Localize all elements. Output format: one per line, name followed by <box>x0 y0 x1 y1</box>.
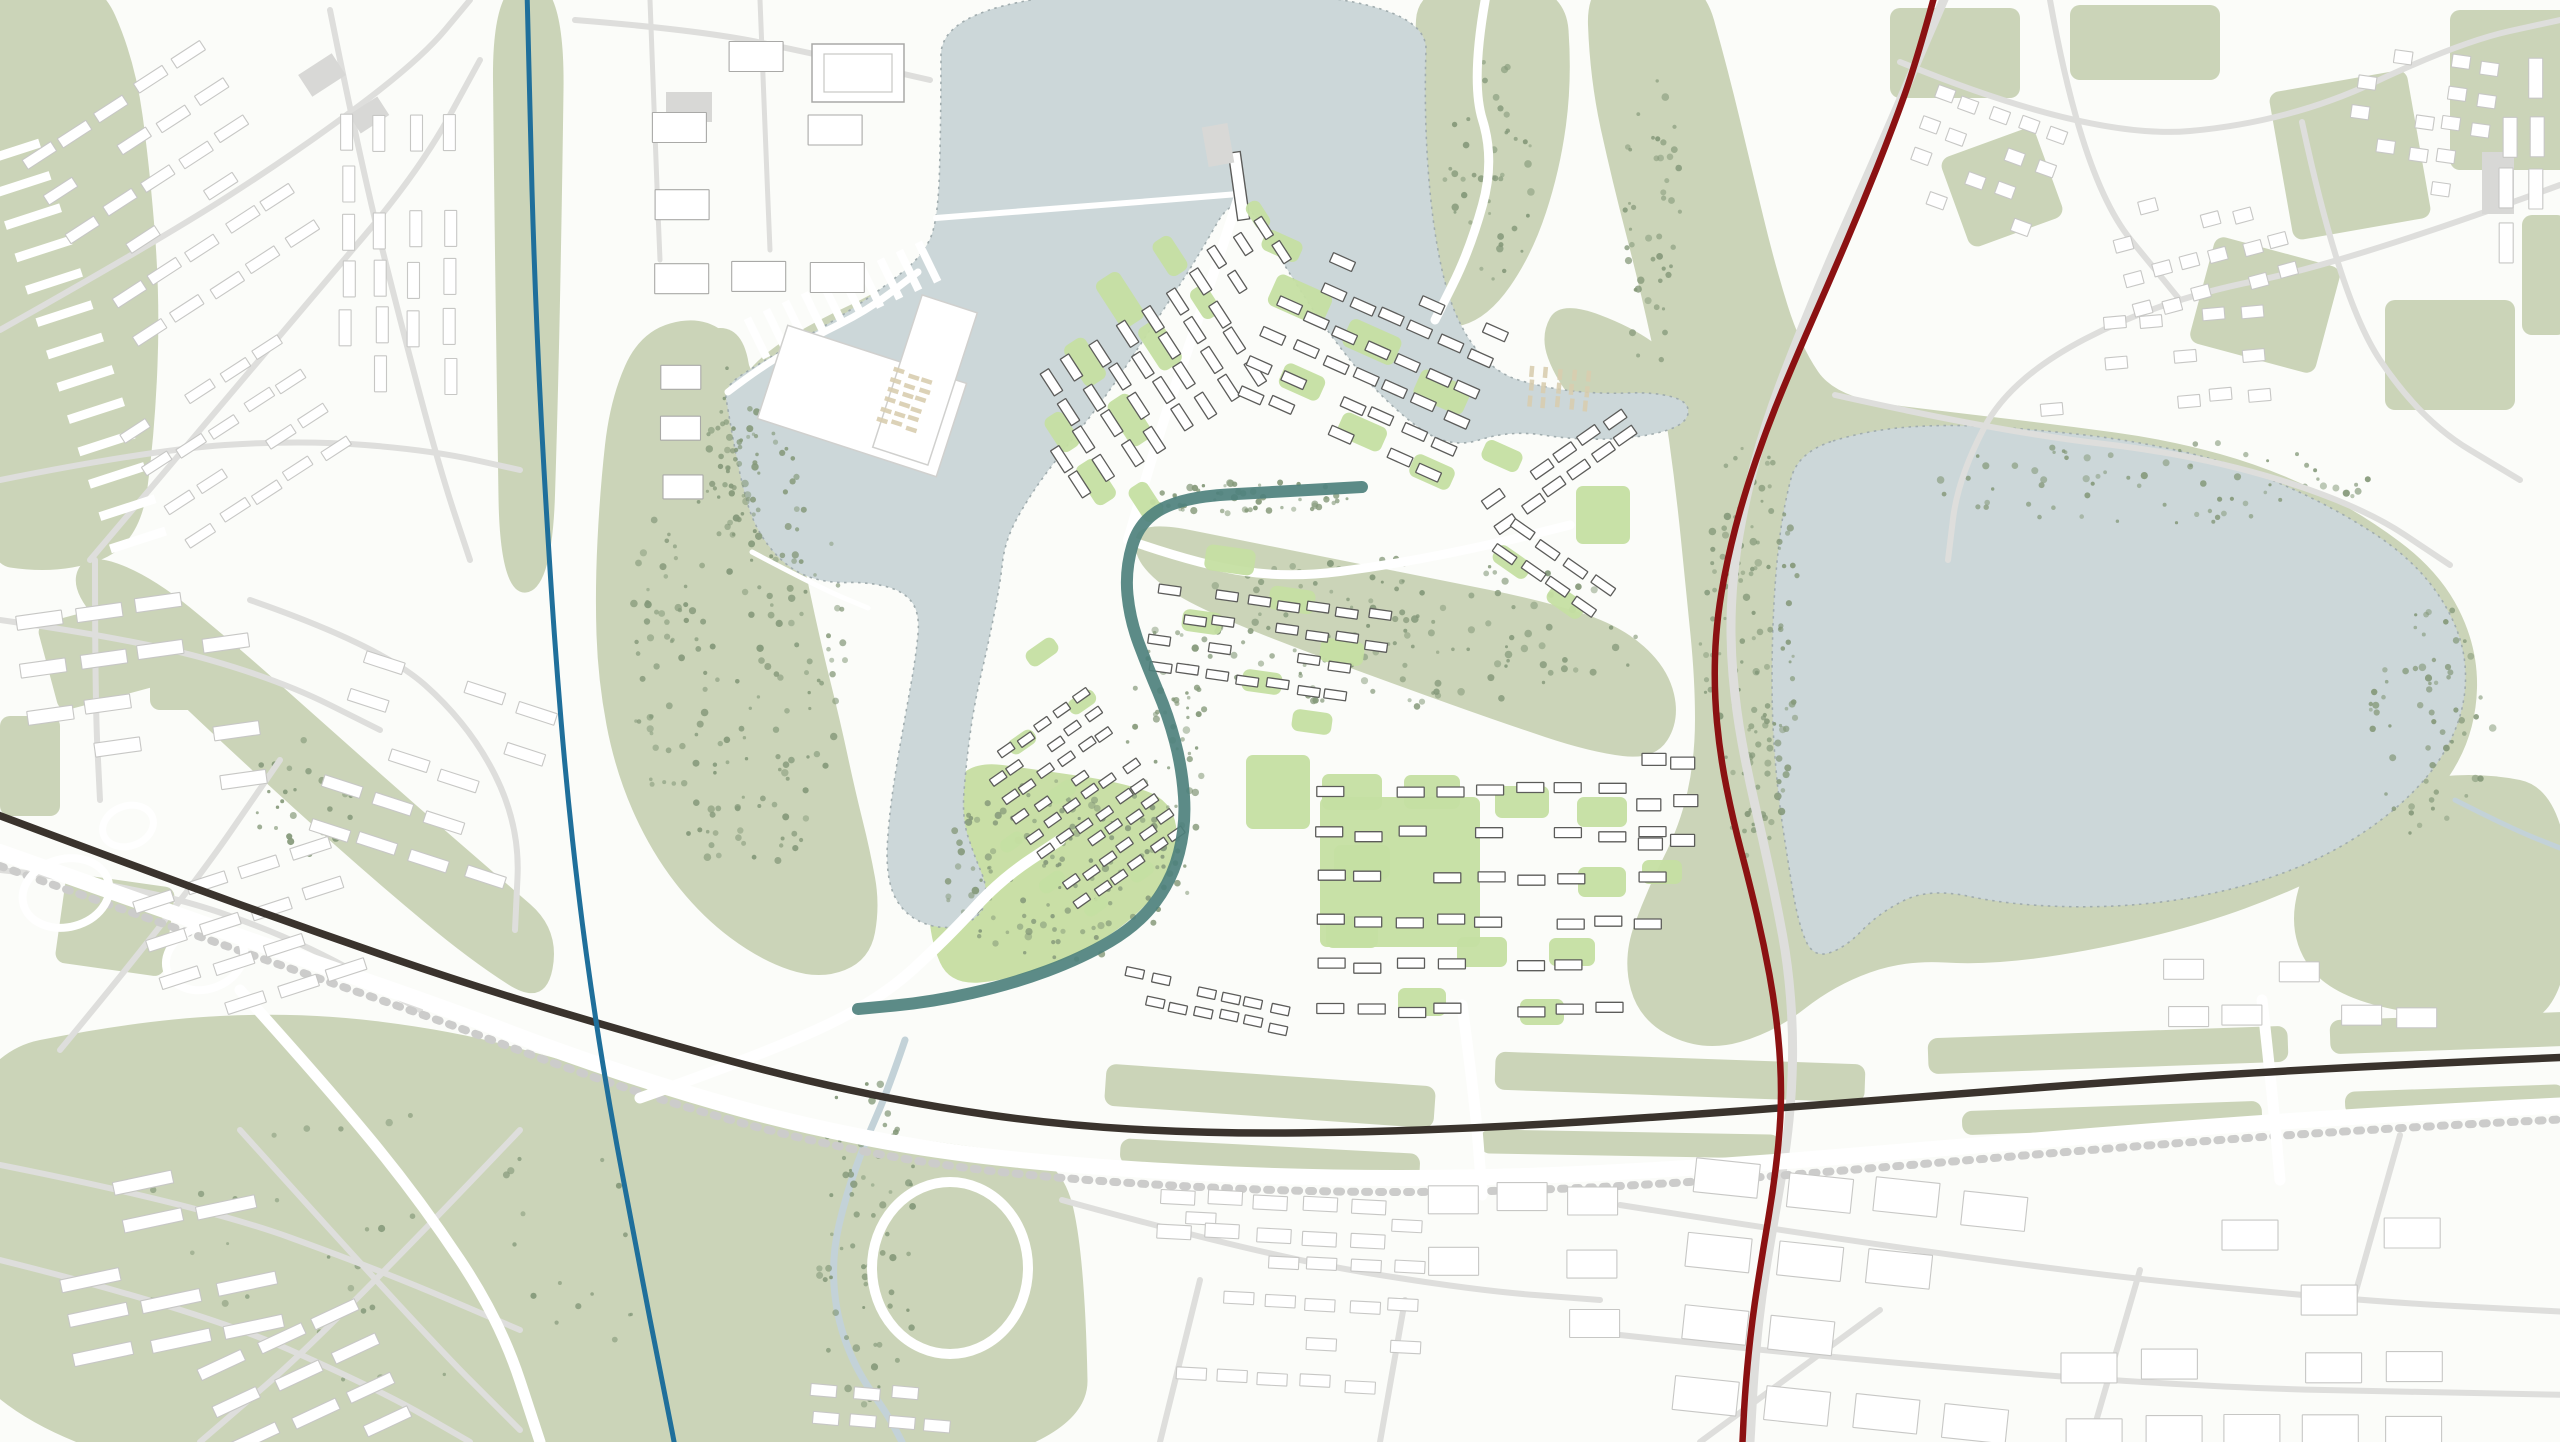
tree-dot <box>1743 594 1750 601</box>
tree-dot <box>2108 452 2114 458</box>
tree-dot <box>1006 931 1010 935</box>
tree-dot <box>1479 267 1483 271</box>
tree-dot <box>753 529 757 533</box>
tree-dot <box>1710 561 1714 565</box>
building <box>2242 349 2265 363</box>
tree-dot <box>850 1181 857 1188</box>
building <box>1557 919 1584 929</box>
tree-dot <box>822 763 828 769</box>
tree-dot <box>664 619 670 625</box>
tree-dot <box>785 523 792 530</box>
building <box>1556 1004 1583 1014</box>
tree-dot <box>1527 188 1535 196</box>
tree-dot <box>880 1250 886 1256</box>
tree-dot <box>647 634 654 641</box>
building <box>1345 1381 1376 1395</box>
tree-dot <box>1942 492 1947 497</box>
tree-dot <box>1530 602 1538 610</box>
building <box>1476 828 1503 838</box>
building <box>1438 914 1465 924</box>
tree-dot <box>1468 220 1472 224</box>
tree-dot <box>1498 695 1505 702</box>
tree-dot <box>1212 582 1219 589</box>
tree-dot <box>747 406 753 412</box>
tree-dot <box>1976 454 1980 458</box>
tree-dot <box>757 585 761 589</box>
building <box>1205 1223 1240 1239</box>
tree-dot <box>718 454 724 460</box>
tree-dot <box>780 553 786 559</box>
building <box>2376 139 2396 154</box>
tree-dot <box>1175 630 1180 635</box>
tree-dot <box>1740 638 1746 644</box>
building <box>810 263 864 293</box>
tree-dot <box>1741 447 1744 450</box>
tree-dot <box>1651 257 1656 262</box>
tree-dot <box>287 838 294 845</box>
tree-dot <box>2419 664 2427 672</box>
tree-dot <box>695 646 701 652</box>
tree-dot <box>1754 730 1757 733</box>
tree-dot <box>1125 825 1131 831</box>
tree-dot <box>724 419 730 425</box>
tree-dot <box>816 1265 822 1271</box>
tree-dot <box>1160 490 1165 495</box>
tree-dot <box>693 760 700 767</box>
boat-mark <box>1543 367 1548 378</box>
tree-dot <box>1562 657 1568 663</box>
tree-dot <box>1778 627 1781 630</box>
tree-dot <box>774 671 780 677</box>
tree-dot <box>2440 729 2446 735</box>
tree-dot <box>703 671 707 675</box>
building <box>2141 1349 2197 1379</box>
tree-dot <box>2084 454 2091 461</box>
tree-dot <box>1266 626 1270 630</box>
building <box>1317 914 1344 924</box>
tree-dot <box>665 539 670 544</box>
tree-dot <box>1675 165 1682 172</box>
building <box>729 42 783 72</box>
building <box>1642 753 1666 765</box>
building <box>1351 1199 1386 1215</box>
tree-dot <box>731 426 736 431</box>
tree-dot <box>1433 689 1439 695</box>
tree-dot <box>849 1192 854 1197</box>
tree-dot <box>1539 642 1546 649</box>
tree-dot <box>1710 547 1715 552</box>
tree-dot <box>637 719 642 724</box>
tree-dot <box>1790 563 1796 569</box>
tree-dot <box>1400 676 1406 682</box>
tree-dot <box>1778 547 1781 550</box>
building <box>1570 1310 1620 1338</box>
building <box>1639 872 1666 882</box>
tree-dot <box>1671 245 1676 250</box>
tree-dot <box>1411 645 1415 649</box>
tree-dot <box>958 848 965 855</box>
tree-dot <box>1495 590 1501 596</box>
tree-dot <box>1651 136 1655 140</box>
tree-dot <box>575 1303 581 1309</box>
tree-dot <box>1078 817 1081 820</box>
tree-dot <box>889 1289 895 1295</box>
building <box>2393 50 2413 65</box>
tree-dot <box>755 453 759 457</box>
tree-dot <box>1202 484 1205 487</box>
tree-dot <box>1546 624 1553 631</box>
tree-dot <box>836 583 841 588</box>
tree-dot <box>1313 581 1318 586</box>
tree-dot <box>1201 636 1207 642</box>
building <box>2386 1352 2442 1382</box>
building <box>1961 1191 2028 1232</box>
tree-dot <box>327 1255 331 1259</box>
tree-dot <box>2374 709 2380 715</box>
tree-dot <box>1153 716 1160 723</box>
tree-dot <box>1059 856 1065 862</box>
tree-dot <box>757 804 761 808</box>
map-stage <box>0 0 2560 1442</box>
building <box>339 310 351 346</box>
tree-dot <box>862 1306 865 1309</box>
tree-dot <box>2217 497 2222 502</box>
tree-dot <box>2215 440 2221 446</box>
tree-dot <box>779 843 783 847</box>
tree-dot <box>1173 697 1179 703</box>
building <box>1637 799 1661 811</box>
tree-dot <box>817 679 821 683</box>
tree-dot <box>1509 635 1514 640</box>
tree-dot <box>1419 590 1425 596</box>
tree-dot <box>1628 202 1631 205</box>
tree-dot <box>2230 497 2234 501</box>
tree-dot <box>378 1225 385 1232</box>
tree-dot <box>1631 205 1636 210</box>
tree-dot <box>636 651 641 656</box>
building <box>2279 962 2319 982</box>
tree-dot <box>1738 578 1743 583</box>
tree-dot <box>1454 211 1457 214</box>
tree-dot <box>272 1133 277 1138</box>
tree-dot <box>645 600 649 604</box>
tree-dot <box>2163 503 2167 507</box>
tree-dot <box>725 465 731 471</box>
building <box>443 308 455 344</box>
building <box>1865 1249 1932 1290</box>
tree-dot <box>1783 726 1789 732</box>
tree-dot <box>990 848 996 854</box>
building <box>655 190 709 220</box>
tree-dot <box>2243 501 2249 507</box>
tree-dot <box>1026 793 1030 797</box>
tree-dot <box>1523 139 1528 144</box>
building <box>373 115 385 151</box>
tree-dot <box>1704 691 1707 694</box>
tree-dot <box>2012 462 2019 469</box>
tree-dot <box>1411 615 1419 623</box>
tree-dot <box>2372 702 2379 709</box>
tree-dot <box>825 1265 832 1272</box>
building <box>2357 75 2377 90</box>
tree-dot <box>756 645 763 652</box>
building <box>2384 1218 2440 1248</box>
tree-dot <box>743 736 746 739</box>
building <box>2529 58 2543 98</box>
tree-dot <box>739 726 745 732</box>
tree-dot <box>1252 619 1259 626</box>
tree-dot <box>1526 214 1530 218</box>
tree-dot <box>1730 770 1735 775</box>
tree-dot <box>773 727 779 733</box>
tree-dot <box>968 892 974 898</box>
tree-dot <box>871 1363 878 1370</box>
building <box>1567 1250 1617 1278</box>
tree-dot <box>1080 929 1085 934</box>
tree-dot <box>1225 510 1231 516</box>
tree-dot <box>1763 713 1767 717</box>
tree-dot <box>844 1335 849 1340</box>
tree-dot <box>1755 741 1761 747</box>
tree-dot <box>1625 144 1631 150</box>
tree-dot <box>795 527 799 531</box>
tree-dot <box>1436 651 1439 654</box>
tree-dot <box>2141 472 2148 479</box>
tree-dot <box>1767 456 1771 460</box>
building <box>1358 1004 1385 1014</box>
tree-dot <box>1491 277 1494 280</box>
tree-dot <box>829 1276 833 1280</box>
tree-dot <box>1283 612 1288 617</box>
tree-dot <box>697 500 701 504</box>
tree-dot <box>764 663 771 670</box>
tree-dot <box>992 940 998 946</box>
tree-dot <box>887 1303 892 1308</box>
building <box>1302 1231 1337 1247</box>
tree-dot <box>2026 502 2031 507</box>
tree-dot <box>1323 496 1329 502</box>
tree-dot <box>305 768 311 774</box>
tree-dot <box>1542 681 1545 684</box>
tree-dot <box>1723 617 1726 620</box>
tree-dot <box>1133 686 1138 691</box>
tree-dot <box>1724 464 1729 469</box>
tree-dot <box>678 654 685 661</box>
tree-dot <box>2472 775 2479 782</box>
tree-dot <box>724 737 731 744</box>
tree-dot <box>2382 667 2387 672</box>
tree-dot <box>1645 235 1652 242</box>
tree-dot <box>2443 745 2450 752</box>
tree-dot <box>741 512 745 516</box>
tree-dot <box>1032 819 1037 824</box>
tree-dot <box>889 1254 896 1261</box>
tree-dot <box>773 440 778 445</box>
building <box>2451 54 2471 69</box>
tree-dot <box>1629 228 1632 231</box>
tree-dot <box>736 461 742 467</box>
tree-dot <box>742 589 748 595</box>
tree-dot <box>1712 569 1717 574</box>
tree-dot <box>713 830 719 836</box>
tree-dot <box>829 1193 833 1197</box>
tree-dot <box>1757 629 1764 636</box>
tree-dot <box>752 855 757 860</box>
tree-dot <box>558 1281 562 1285</box>
tree-dot <box>989 869 993 873</box>
tree-dot <box>600 1158 604 1162</box>
tree-dot <box>2445 664 2451 670</box>
building <box>1350 1301 1381 1315</box>
building <box>2441 115 2461 130</box>
tree-dot <box>1435 680 1442 687</box>
building <box>2178 394 2201 408</box>
building <box>1438 959 1465 969</box>
tree-dot <box>2221 511 2227 517</box>
tree-dot <box>715 677 720 682</box>
tree-dot <box>778 768 782 772</box>
tree-dot <box>1161 855 1165 859</box>
tree-dot <box>885 1110 892 1117</box>
tree-dot <box>1109 835 1114 840</box>
tree-dot <box>697 721 704 728</box>
tree-dot <box>2369 708 2373 712</box>
tree-dot <box>1785 531 1790 536</box>
building <box>2306 1353 2362 1383</box>
tree-dot <box>1299 672 1302 675</box>
tree-dot <box>275 1198 279 1202</box>
tree-dot <box>708 805 715 812</box>
building <box>1354 963 1381 973</box>
tree-dot <box>1529 144 1532 147</box>
tree-dot <box>443 1373 446 1376</box>
tree-dot <box>713 763 717 767</box>
tree-dot <box>1776 779 1781 784</box>
tree-dot <box>808 707 811 710</box>
tree-dot <box>1329 590 1333 594</box>
tree-dot <box>735 804 741 810</box>
building <box>849 1414 876 1428</box>
tree-dot <box>709 481 715 487</box>
tree-dot <box>1193 824 1200 831</box>
tree-dot <box>684 618 689 623</box>
boat-mark <box>1540 397 1545 408</box>
tree-dot <box>727 520 733 526</box>
tree-dot <box>1781 788 1786 793</box>
tree-dot <box>640 676 646 682</box>
tree-dot <box>1783 771 1790 778</box>
tree-dot <box>2103 470 2107 474</box>
tree-dot <box>2194 512 2199 517</box>
tree-dot <box>785 447 789 451</box>
tree-dot <box>877 1385 880 1388</box>
tree-dot <box>1786 640 1791 645</box>
tree-dot <box>1767 836 1771 840</box>
tree-dot <box>1419 699 1425 705</box>
building <box>2397 1008 2437 1028</box>
tree-dot <box>1497 105 1503 111</box>
tree-dot <box>1483 571 1489 577</box>
building <box>2103 316 2126 330</box>
tree-dot <box>1664 178 1669 183</box>
tree-dot <box>348 1285 355 1292</box>
tree-dot <box>2414 613 2417 616</box>
building <box>373 213 385 249</box>
building <box>1257 1373 1288 1387</box>
building <box>808 115 862 145</box>
tree-dot <box>799 838 803 842</box>
tree-dot <box>1350 606 1353 609</box>
building <box>2248 388 2271 402</box>
tree-dot <box>1524 160 1532 168</box>
tree-dot <box>1452 122 1457 127</box>
tree-dot <box>1975 504 1980 509</box>
tree-dot <box>1054 779 1058 783</box>
tree-dot <box>1750 538 1758 546</box>
boat-mark <box>1582 400 1587 411</box>
tree-dot <box>770 603 774 607</box>
tree-dot <box>1672 125 1676 129</box>
tree-dot <box>507 1167 514 1174</box>
tree-dot <box>693 799 700 806</box>
tree-dot <box>2402 668 2409 675</box>
building <box>2350 105 2370 120</box>
tree-dot <box>830 733 837 740</box>
tree-dot <box>1722 532 1729 539</box>
tree-dot <box>1629 242 1635 248</box>
tree-dot <box>1752 636 1756 640</box>
tree-dot <box>304 1125 311 1132</box>
tree-dot <box>1180 633 1184 637</box>
building <box>2169 1007 2209 1027</box>
boat-mark <box>1557 369 1562 380</box>
tree-dot <box>1065 907 1071 913</box>
tree-dot <box>1785 707 1789 711</box>
tree-dot <box>1150 920 1156 926</box>
tree-dot <box>842 657 848 663</box>
tree-dot <box>1248 507 1253 512</box>
building <box>1599 832 1626 842</box>
tree-dot <box>1058 862 1062 866</box>
tree-dot <box>717 531 722 536</box>
tree-dot <box>1051 940 1055 944</box>
tree-dot <box>716 853 722 859</box>
tree-dot <box>2473 714 2479 720</box>
tree-dot <box>1381 581 1384 584</box>
building <box>2146 1416 2202 1442</box>
tree-dot <box>1761 500 1764 503</box>
tree-dot <box>1132 724 1138 730</box>
tree-dot <box>1667 154 1674 161</box>
tree-dot <box>742 494 746 498</box>
tree-dot <box>945 878 952 885</box>
building <box>810 1383 837 1397</box>
tree-dot <box>1443 177 1448 182</box>
tree-dot <box>974 817 980 823</box>
building <box>1568 1187 1618 1215</box>
tree-dot <box>779 450 785 456</box>
tree-dot <box>2453 707 2458 712</box>
tree-dot <box>1764 760 1771 767</box>
tree-dot <box>861 1401 867 1407</box>
tree-dot <box>2313 468 2317 472</box>
tree-dot <box>1789 660 1792 663</box>
tree-dot <box>1636 112 1640 116</box>
tree-dot <box>840 1247 844 1251</box>
tree-dot <box>806 755 809 758</box>
tree-dot <box>2126 476 2130 480</box>
tree-dot <box>760 796 766 802</box>
